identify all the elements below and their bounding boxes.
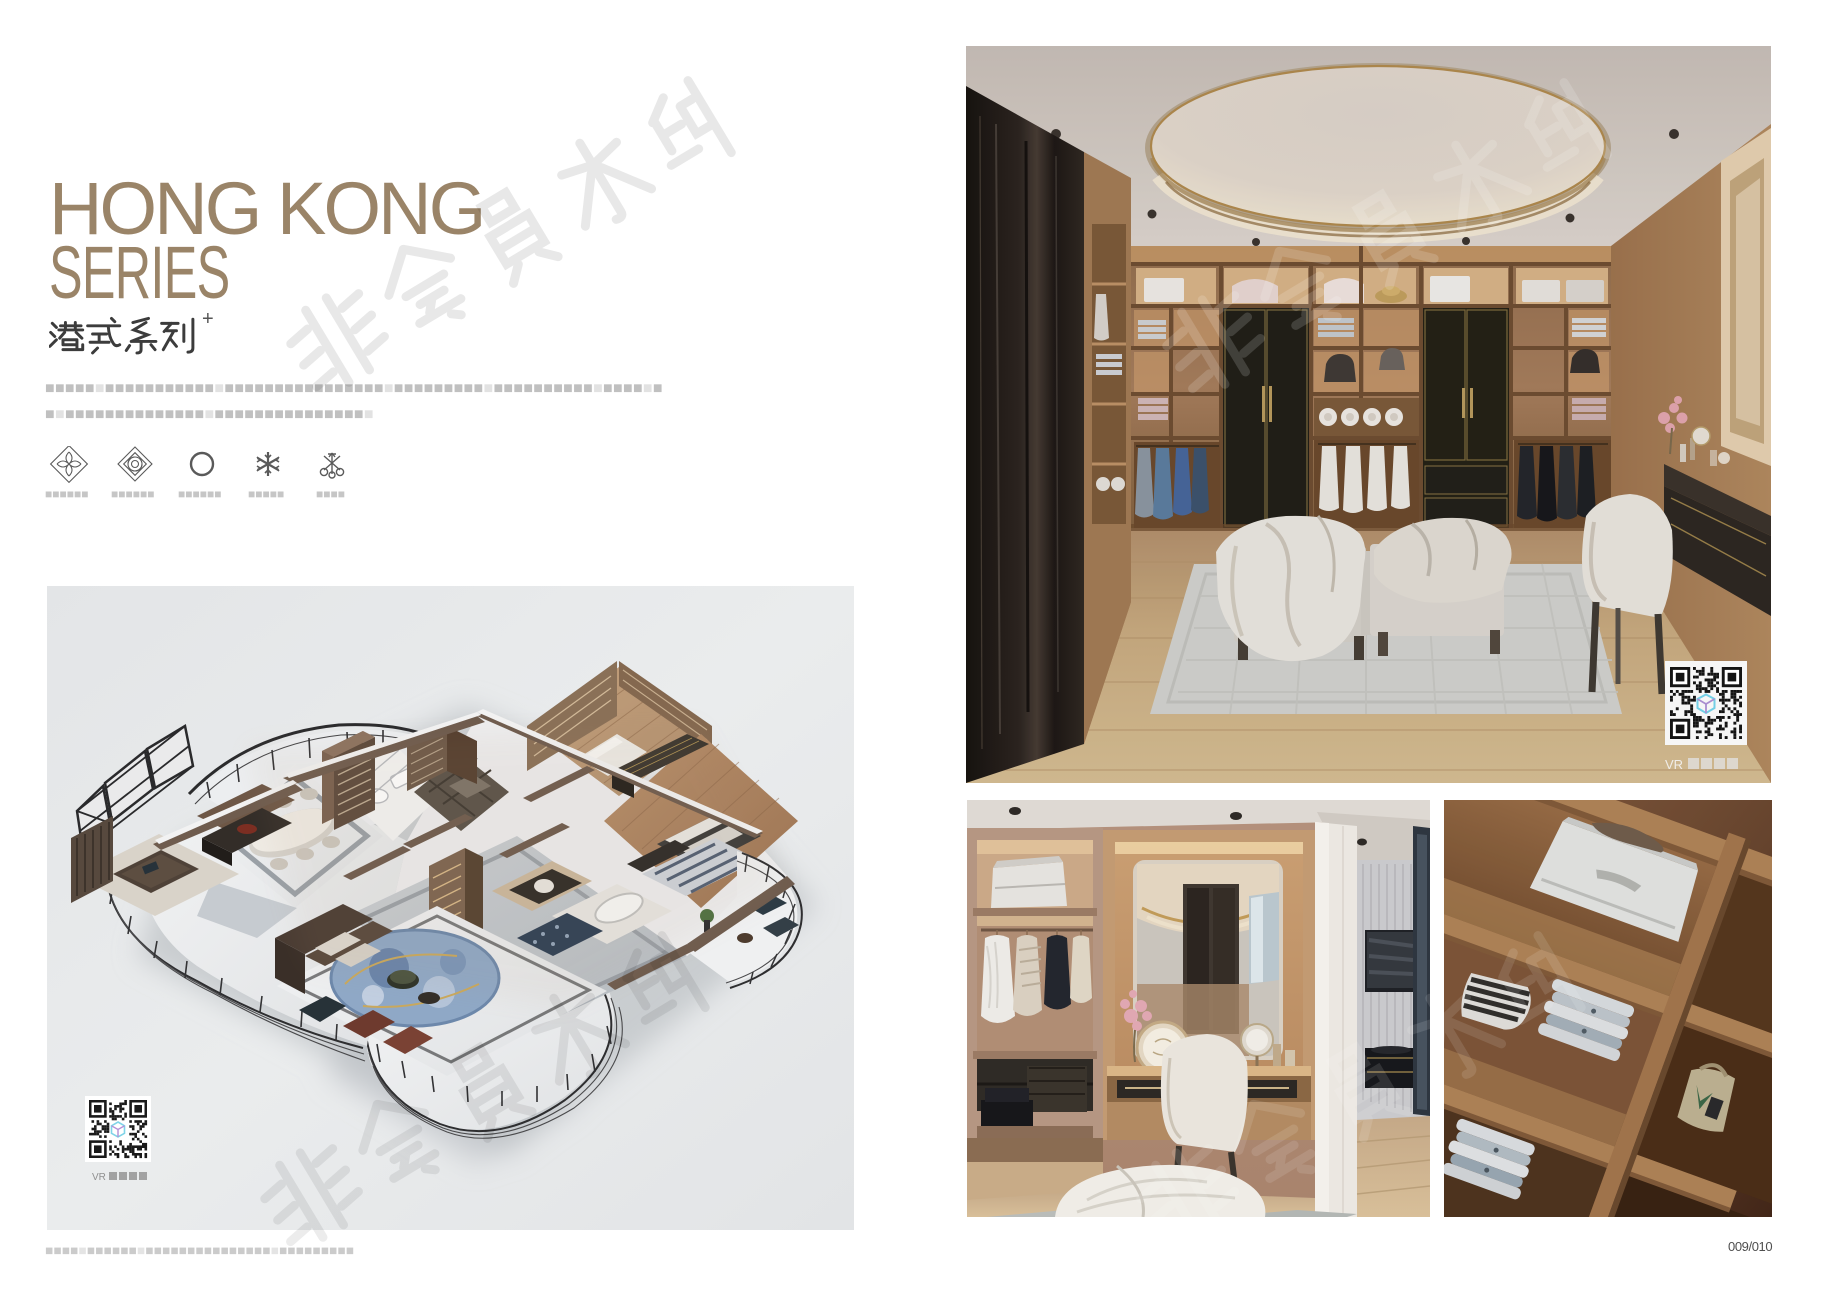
svg-text:VR: VR xyxy=(1665,757,1683,772)
svg-text:VR: VR xyxy=(92,1172,106,1183)
